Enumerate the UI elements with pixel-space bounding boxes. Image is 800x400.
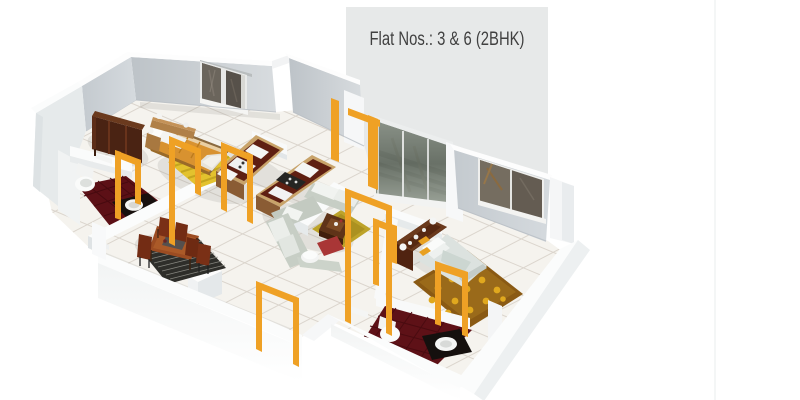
svg-text:Flat Nos.: 3 & 6 (2BHK): Flat Nos.: 3 & 6 (2BHK): [370, 29, 525, 50]
